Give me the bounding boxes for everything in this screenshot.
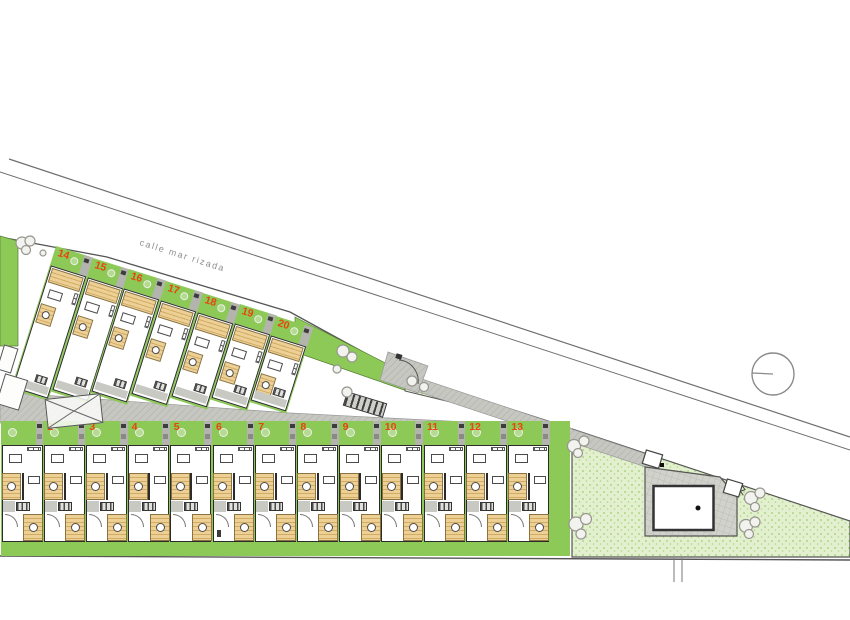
terrace-deck: [150, 514, 170, 541]
entry-path: [204, 421, 212, 445]
stairs: [16, 502, 30, 511]
shrub-icon: [106, 268, 116, 278]
patio-table-icon: [535, 523, 544, 532]
entry-path: [36, 421, 44, 445]
terrace-deck: [23, 514, 43, 541]
stairs: [100, 502, 114, 511]
patio-table-icon: [91, 482, 100, 491]
terrace-deck: [508, 473, 527, 500]
door-swing: [427, 514, 440, 527]
terrace-deck: [361, 514, 381, 541]
terrace-deck: [145, 338, 166, 362]
interior-wall: [275, 473, 277, 500]
back-patio: [298, 501, 310, 512]
patio-table-icon: [77, 322, 87, 332]
patio-table-icon: [451, 523, 460, 532]
terrace-deck: [255, 473, 274, 500]
house-unit: 11: [423, 421, 465, 556]
terrace-deck: [231, 326, 267, 350]
dining-table: [230, 347, 246, 360]
patio-table-icon: [429, 482, 438, 491]
terrace-deck: [44, 473, 63, 500]
unit-number: 20: [276, 318, 290, 332]
terrace-deck: [340, 473, 359, 500]
kitchen-counter: [533, 447, 547, 451]
house-unit: 5: [170, 421, 212, 556]
terrace-deck: [47, 268, 83, 292]
shrub-icon: [69, 256, 79, 266]
patio-table-icon: [409, 523, 418, 532]
terrace-deck: [108, 326, 129, 350]
terrace-deck: [107, 514, 127, 541]
door-swing: [342, 514, 355, 527]
door-swing: [131, 514, 144, 527]
interior-wall: [64, 473, 66, 500]
stairs: [227, 502, 241, 511]
kitchen-counter: [364, 447, 378, 451]
stairs: [311, 502, 325, 511]
interior-wall: [486, 473, 488, 500]
dining-table: [47, 289, 63, 302]
patio-table-icon: [176, 482, 185, 491]
unit-number: 6: [216, 422, 222, 433]
kitchen-counter: [27, 447, 41, 451]
unit-number: 16: [130, 271, 144, 285]
patio-table-icon: [40, 310, 50, 320]
terrace-deck: [35, 303, 56, 327]
entry-path: [299, 325, 313, 347]
dining-table: [220, 454, 233, 463]
dining-table: [193, 335, 209, 348]
interior-wall: [317, 473, 319, 500]
kitchen-counter: [449, 447, 463, 451]
entry-path: [162, 421, 170, 445]
interior-wall: [528, 473, 530, 500]
entry-path: [458, 421, 466, 445]
outbuilding: [0, 373, 28, 411]
entry-path: [247, 421, 255, 445]
shrub-icon: [216, 303, 226, 313]
terrace-deck: [297, 473, 316, 500]
house-floorplan: [2, 445, 43, 542]
house-unit: 4: [128, 421, 170, 556]
unit-number: 18: [203, 295, 217, 309]
houses-layer: 2 3: [0, 0, 850, 620]
house-floorplan: [255, 445, 296, 542]
house-floorplan: [44, 445, 85, 542]
kitchen-counter: [491, 447, 505, 451]
stairs: [58, 502, 72, 511]
back-patio: [340, 501, 352, 512]
terrace-deck: [267, 337, 303, 361]
bed: [70, 476, 82, 484]
stairs: [395, 502, 409, 511]
dining-table: [473, 454, 486, 463]
patio-table-icon: [282, 523, 291, 532]
interior-wall: [22, 473, 24, 500]
unit-number: 13: [511, 422, 523, 433]
door-swing: [258, 514, 271, 527]
kitchen-counter: [69, 447, 83, 451]
dining-table: [431, 454, 444, 463]
house-floorplan: [128, 445, 169, 542]
back-patio: [509, 501, 521, 512]
dining-table: [177, 454, 190, 463]
patio-table-icon: [187, 356, 197, 366]
dining-table: [135, 454, 148, 463]
dining-table: [267, 359, 283, 372]
terrace-deck: [276, 514, 296, 541]
back-patio: [214, 501, 226, 512]
bed: [534, 476, 546, 484]
side-garden: [550, 421, 570, 556]
bed: [112, 476, 124, 484]
patio-table-icon: [114, 333, 124, 343]
stairs: [522, 502, 536, 511]
stairs: [480, 502, 494, 511]
unit-number: 14: [56, 248, 70, 262]
interior-wall: [401, 473, 403, 500]
unit-number: 19: [240, 306, 254, 320]
dining-table: [388, 454, 401, 463]
kitchen-counter: [111, 447, 125, 451]
interior-wall: [106, 473, 108, 500]
back-patio: [256, 501, 268, 512]
interior-wall: [148, 473, 150, 500]
terrace-deck: [234, 514, 254, 541]
terrace-deck: [466, 473, 485, 500]
bed: [154, 476, 166, 484]
patio-table-icon: [134, 482, 143, 491]
house-unit: 8: [296, 421, 338, 556]
unit-number: 5: [174, 422, 180, 433]
dining-table: [51, 454, 64, 463]
house-unit: 12: [465, 421, 507, 556]
carport-pergola: [45, 393, 104, 429]
bed: [407, 476, 419, 484]
shrub-icon: [143, 279, 153, 289]
interior-wall: [190, 473, 192, 500]
house-floorplan: [86, 445, 127, 542]
figure-marker: [217, 530, 221, 537]
door-swing: [384, 514, 397, 527]
dining-table: [9, 454, 22, 463]
terrace-deck: [529, 514, 549, 541]
site-plan: calle mar rizada: [0, 0, 850, 620]
terrace-deck: [318, 514, 338, 541]
entry-path: [373, 421, 381, 445]
house-floorplan: [297, 445, 338, 542]
terrace-deck: [192, 514, 212, 541]
kitchen-counter: [322, 447, 336, 451]
house-floorplan: [170, 445, 211, 542]
patio-table-icon: [150, 345, 160, 355]
house-unit: 9: [339, 421, 381, 556]
back-patio: [382, 501, 394, 512]
patio-table-icon: [240, 523, 249, 532]
patio-table-icon: [29, 523, 38, 532]
patio-table-icon: [387, 482, 396, 491]
patio-table-icon: [49, 482, 58, 491]
outbuilding: [0, 344, 18, 373]
entry-path: [500, 421, 508, 445]
pergola-cross-icon: [46, 394, 103, 427]
bed: [281, 476, 293, 484]
bed: [323, 476, 335, 484]
entry-path: [415, 421, 423, 445]
terrace-deck: [129, 473, 148, 500]
bed: [365, 476, 377, 484]
dining-table: [346, 454, 359, 463]
kitchen-counter: [291, 363, 298, 376]
patio-table-icon: [302, 482, 311, 491]
terrace-deck: [171, 473, 190, 500]
back-patio: [87, 501, 99, 512]
house-unit: 3: [85, 421, 127, 556]
shrub-icon: [289, 326, 299, 336]
house-unit: 7: [254, 421, 296, 556]
back-patio: [467, 501, 479, 512]
door-swing: [511, 514, 524, 527]
patio-table-icon: [7, 482, 16, 491]
kitchen-counter: [238, 447, 252, 451]
door-swing: [89, 514, 102, 527]
house-floorplan: [466, 445, 507, 542]
stairs: [438, 502, 452, 511]
road-stairs: [343, 391, 388, 418]
house-unit: [1, 421, 43, 556]
unit-number: 11: [427, 422, 438, 433]
patio-table-icon: [493, 523, 502, 532]
unit-number: 9: [343, 422, 349, 433]
bed: [492, 476, 504, 484]
back-patio: [171, 501, 183, 512]
patio-table-icon: [345, 482, 354, 491]
terrace-deck: [403, 514, 423, 541]
terrace-deck: [445, 514, 465, 541]
door-swing: [216, 514, 229, 527]
house-floorplan: [424, 445, 465, 542]
terrace-deck: [86, 473, 105, 500]
bed: [28, 476, 40, 484]
bed: [450, 476, 462, 484]
stairs: [142, 502, 156, 511]
house-unit: 2: [43, 421, 85, 556]
patio-table-icon: [367, 523, 376, 532]
terrace-deck: [181, 350, 202, 374]
stairs: [269, 502, 283, 511]
unit-number: 17: [166, 283, 180, 297]
terrace-deck: [218, 361, 239, 385]
terrace-deck: [382, 473, 401, 500]
patio-table-icon: [156, 523, 165, 532]
terrace-deck: [487, 514, 507, 541]
dining-table: [515, 454, 528, 463]
terrace-deck: [2, 473, 21, 500]
dining-table: [157, 324, 173, 337]
door-swing: [469, 514, 482, 527]
door-swing: [173, 514, 186, 527]
kitchen-counter: [195, 447, 209, 451]
house-floorplan: [381, 445, 422, 542]
house-unit: 13: [507, 421, 549, 556]
door-swing: [47, 514, 60, 527]
shrub-icon: [253, 314, 263, 324]
back-patio: [425, 501, 437, 512]
kitchen-counter: [406, 447, 420, 451]
terrace-deck: [213, 473, 232, 500]
terrace-deck: [65, 514, 85, 541]
house-floorplan: [213, 445, 254, 542]
kitchen-counter: [280, 447, 294, 451]
dining-table: [120, 312, 136, 325]
house-unit: 10: [381, 421, 423, 556]
dining-table: [83, 301, 99, 314]
terrace-deck: [157, 303, 193, 327]
terrace-deck: [424, 473, 443, 500]
patio-table-icon: [324, 523, 333, 532]
patio-table-icon: [224, 368, 234, 378]
interior-wall: [359, 473, 361, 500]
terrace-deck: [84, 279, 120, 303]
patio-table-icon: [260, 482, 269, 491]
patio-table-icon: [113, 523, 122, 532]
patio-table-icon: [513, 482, 522, 491]
back-patio: [45, 501, 57, 512]
shrub-icon: [179, 291, 189, 301]
unit-number: 8: [300, 422, 306, 433]
stairs: [184, 502, 198, 511]
unit-number: 10: [385, 422, 397, 433]
door-swing: [300, 514, 313, 527]
patio-table-icon: [260, 380, 270, 390]
bed: [239, 476, 251, 484]
terrace-deck: [194, 314, 230, 338]
back-patio: [3, 501, 15, 512]
patio-table-icon: [218, 482, 227, 491]
entry-path: [331, 421, 339, 445]
entry-path: [542, 421, 550, 445]
kitchen-counter: [153, 447, 167, 451]
patio-table-icon: [71, 523, 80, 532]
house-floorplan: [339, 445, 380, 542]
dining-table: [262, 454, 275, 463]
entry-path: [120, 421, 128, 445]
unit-number: 7: [258, 422, 264, 433]
door-swing: [5, 514, 18, 527]
entry-path: [289, 421, 297, 445]
unit-number: 4: [132, 422, 138, 433]
house-floorplan: [508, 445, 549, 542]
dining-table: [304, 454, 317, 463]
shrub-icon: [8, 428, 17, 437]
dining-table: [93, 454, 106, 463]
terrace-deck: [71, 315, 92, 339]
patio-table-icon: [198, 523, 207, 532]
unit-number: 12: [469, 422, 481, 433]
stairs: [353, 502, 367, 511]
unit-number: 15: [93, 260, 107, 274]
patio-table-icon: [471, 482, 480, 491]
interior-wall: [233, 473, 235, 500]
interior-wall: [444, 473, 446, 500]
bed: [196, 476, 208, 484]
back-patio: [129, 501, 141, 512]
